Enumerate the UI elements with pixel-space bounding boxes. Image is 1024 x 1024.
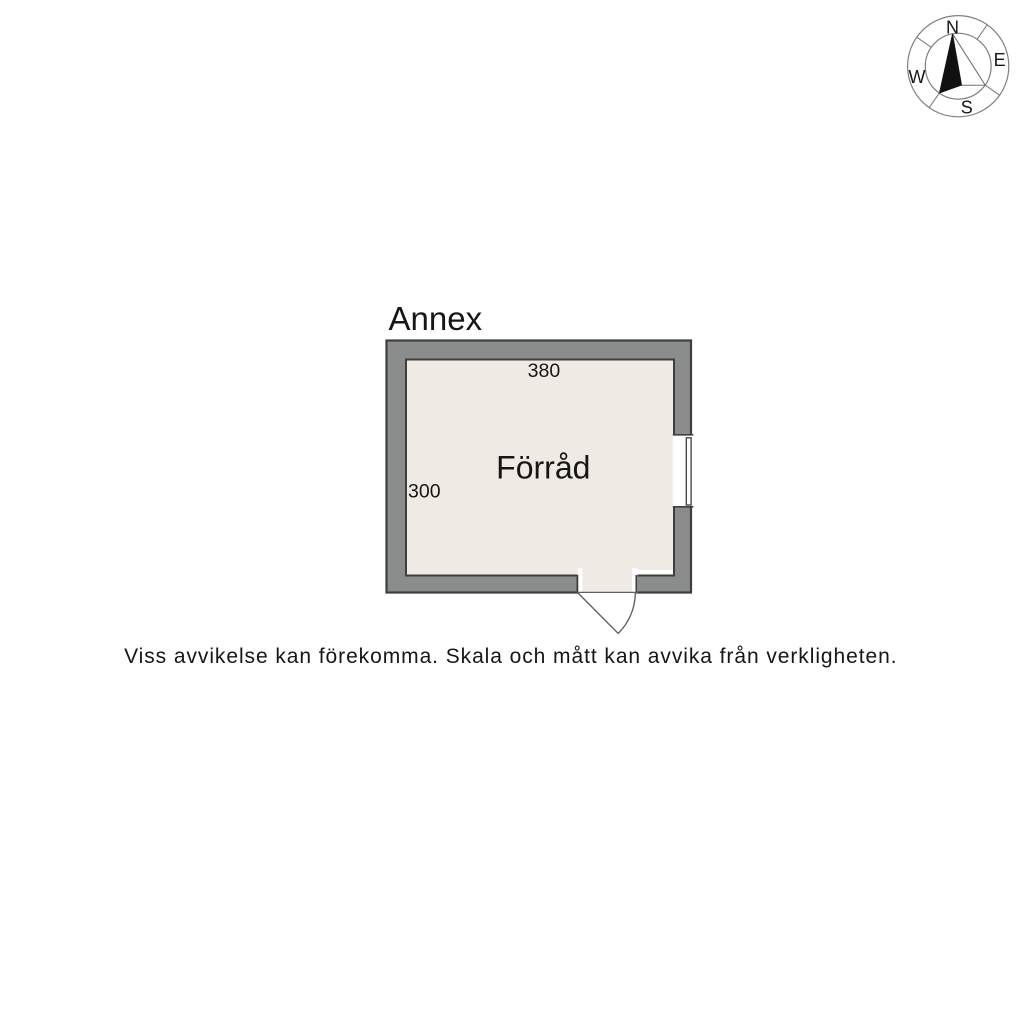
svg-text:N: N [946,17,959,37]
svg-text:Förråd: Förråd [496,449,590,485]
svg-text:380: 380 [528,360,561,382]
svg-text:W: W [909,67,926,87]
svg-text:E: E [994,50,1006,70]
svg-text:300: 300 [408,480,441,502]
svg-text:S: S [961,98,973,118]
svg-text:Annex: Annex [389,300,483,337]
svg-text:Viss avvikelse kan förekomma.: Viss avvikelse kan förekomma. Skala och … [124,645,897,668]
